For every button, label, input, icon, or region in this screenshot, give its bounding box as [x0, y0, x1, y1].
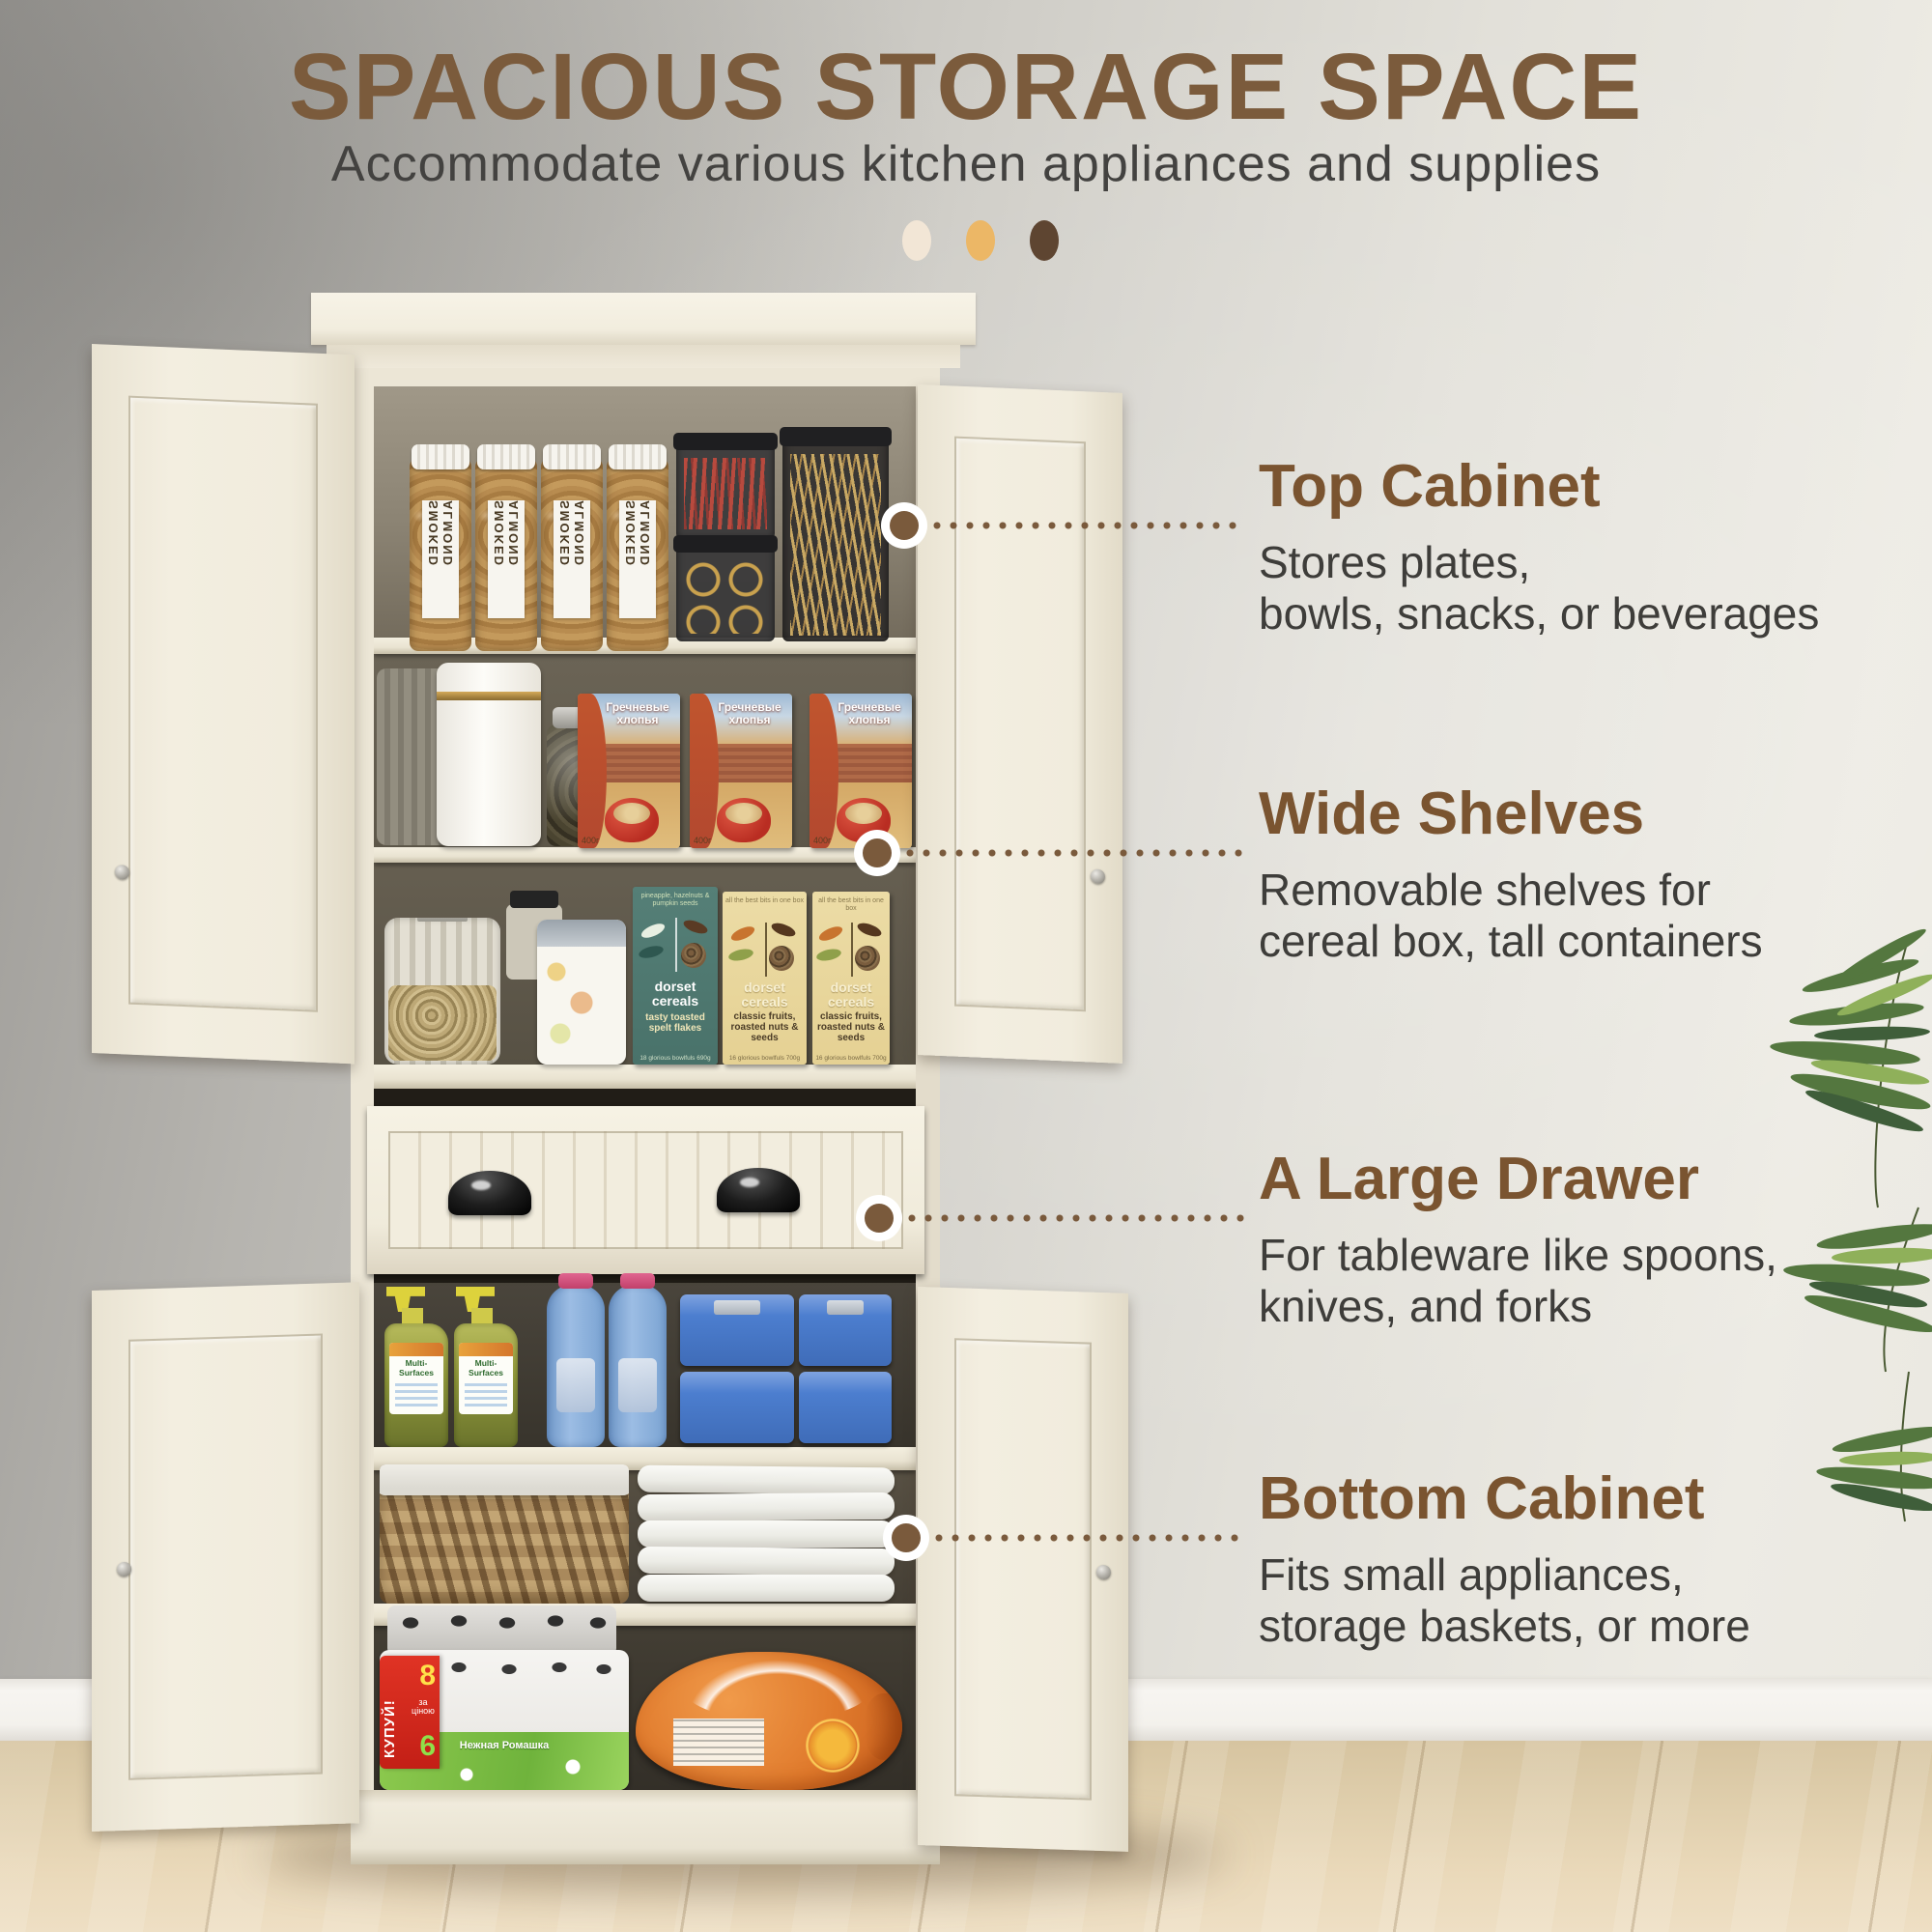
decor-dot-brown: [1030, 220, 1059, 261]
shelf-board: [374, 847, 916, 863]
connector-dot-wide-shelves: [863, 838, 892, 867]
plant-image: [1764, 918, 1932, 1526]
towel: [638, 1492, 895, 1521]
spray-bottle: Multi-Surfaces: [454, 1287, 518, 1447]
callout-title-large-drawer: A Large Drawer: [1259, 1145, 1699, 1213]
gold-band: [437, 692, 541, 700]
leaf-stem-art: [765, 923, 767, 977]
spray-label: Multi-Surfaces: [389, 1343, 443, 1414]
box-latch: [714, 1300, 759, 1315]
storage-box: [680, 1294, 794, 1366]
red-cup-art: [717, 798, 771, 842]
buckwheat-cereal-box: Гречневые хлопья 400г: [810, 694, 912, 848]
connector-line-bottom-cabinet: [935, 1534, 1244, 1542]
leaf-art: [817, 923, 844, 944]
dorset-flavor: classic fruits, roasted nuts & seeds: [724, 1011, 805, 1043]
cereal-box-title: Гречневые хлопья: [599, 701, 676, 726]
callout-body-top-cabinet: Stores plates, bowls, snacks, or beverag…: [1259, 537, 1819, 639]
jar-label: SMOKED ALMOND: [619, 500, 656, 618]
promo-number-6: 6: [419, 1730, 436, 1763]
pasta-container-red: [676, 440, 775, 539]
grain-fill: [388, 985, 497, 1061]
connector-line-drawer: [908, 1214, 1244, 1222]
spray-label: Multi-Surfaces: [459, 1343, 513, 1414]
basket-liner: [380, 1464, 629, 1495]
spaghetti-container: [782, 435, 889, 641]
dorset-flavor: classic fruits, roasted nuts & seeds: [814, 1011, 888, 1043]
leaf-art: [727, 947, 754, 962]
connector-dot-drawer: [865, 1204, 894, 1233]
leaf-art: [856, 921, 883, 939]
dorset-brand: dorset cereals: [633, 980, 718, 1009]
connector-dot-bottom-cabinet: [892, 1523, 921, 1552]
callout-title-top-cabinet: Top Cabinet: [1259, 452, 1601, 521]
container-lid: [673, 535, 778, 553]
cabinet-crown-molding: [311, 293, 976, 345]
dorset-flavor: tasty toasted spelt flakes: [635, 1012, 716, 1034]
callout-body-wide-shelves: Removable shelves for cereal box, tall c…: [1259, 865, 1763, 967]
bag-label-patch: [668, 1713, 770, 1772]
bottom-left-door: [92, 1282, 359, 1832]
towel: [638, 1547, 895, 1576]
almond-jar: SMOKED ALMOND: [475, 458, 537, 651]
box-top-text: all the best bits in one box: [723, 897, 807, 905]
fruit-print-canister: [537, 920, 626, 1065]
decor-dot-tan: [966, 220, 995, 261]
promo-word: КУПУЙ!: [382, 1662, 398, 1758]
callout-body-bottom-cabinet: Fits small appliances, storage baskets, …: [1259, 1549, 1750, 1652]
red-cup-art: [605, 798, 659, 842]
cereal-weight: 400г: [582, 836, 599, 845]
cereal-box-title: Гречневые хлопья: [831, 701, 908, 726]
bag-crinkle: [865, 1693, 902, 1760]
almond-jar: SMOKED ALMOND: [541, 458, 603, 651]
red-spaghetti: [684, 458, 767, 529]
pasta-container-rings: [676, 543, 775, 641]
storage-box: [680, 1372, 794, 1443]
box-bottom-text: 16 glorious bowlfuls 700g: [723, 1055, 807, 1062]
cabinet-base: [351, 1790, 940, 1864]
fruit-print: [543, 958, 620, 1059]
cereal-weight: 400г: [813, 836, 831, 845]
leaf-art: [638, 944, 665, 960]
dorset-brand: dorset cereals: [723, 980, 807, 1009]
promo-number-8: 8: [419, 1660, 436, 1692]
leaf-art: [770, 921, 797, 939]
container-lid: [673, 433, 778, 450]
bottle-cap: [558, 1273, 593, 1289]
buckwheat-cereal-box: Гречневые хлопья 400г: [690, 694, 792, 848]
bottle-label: [556, 1358, 595, 1412]
black-cap: [510, 891, 558, 908]
paper-roll-tops: [387, 1605, 616, 1656]
spray-bottle: Multi-Surfaces: [384, 1287, 448, 1447]
towel: [638, 1465, 895, 1495]
bag-swirl-art: [684, 1658, 870, 1721]
detergent-bottle: [609, 1285, 667, 1447]
detergent-bottle: [547, 1285, 605, 1447]
decor-dot-cream: [902, 220, 931, 261]
jar-lid: [412, 444, 469, 469]
orange-bag: [636, 1652, 902, 1790]
wicker-basket: [380, 1464, 629, 1604]
fruit-photo-art: [855, 946, 880, 971]
leaf-art: [729, 923, 756, 944]
box-latch: [827, 1300, 864, 1315]
cabinet-crown-step: [327, 345, 960, 368]
door-panel: [128, 396, 318, 1012]
container-lid: [780, 427, 892, 446]
bag-sun-art: [806, 1719, 860, 1773]
page-subtitle: Accommodate various kitchen appliances a…: [0, 135, 1932, 193]
bottle-label: [618, 1358, 657, 1412]
jar-label: SMOKED ALMOND: [422, 500, 459, 618]
leaf-stem-art: [675, 918, 677, 972]
storage-box: [799, 1372, 892, 1443]
dorset-cereals-box-cream: all the best bits in one box dorset cere…: [812, 892, 890, 1065]
top-left-door: [92, 344, 355, 1064]
ribbed-glass-jar: [384, 918, 500, 1065]
buckwheat-cereal-box: Гречневые хлопья 400г: [578, 694, 680, 848]
promo-badge: КУПУЙ! 8 за ціною 6: [380, 1656, 440, 1769]
jar-lid: [543, 444, 601, 469]
leaf-stem-art: [851, 923, 853, 977]
folded-towels: [638, 1466, 895, 1604]
jar-lid: [609, 444, 667, 469]
cereal-box-title: Гречневые хлопья: [711, 701, 788, 726]
bottle-cap: [620, 1273, 655, 1289]
fruit-photo-art: [681, 943, 706, 968]
box-top-text: pineapple, hazelnuts & pumpkin seeds: [633, 893, 718, 908]
marketing-infographic: SPACIOUS STORAGE SPACE Accommodate vario…: [0, 0, 1932, 1932]
jar-label: SMOKED ALMOND: [554, 500, 590, 618]
bottom-right-door: [918, 1287, 1128, 1852]
box-bottom-text: 18 glorious bowlfuls 690g: [633, 1055, 718, 1062]
spaghetti-sticks: [790, 454, 881, 636]
door-knob: [115, 865, 129, 880]
dorset-brand: dorset cereals: [812, 980, 890, 1009]
connector-dot-top-cabinet: [890, 511, 919, 540]
white-canister: [437, 663, 541, 846]
page-title: SPACIOUS STORAGE SPACE: [0, 33, 1932, 141]
toilet-paper-pack: Нежная Ромашка КУПУЙ! 8 за ціною 6: [380, 1629, 629, 1790]
drawer-gap-top: [374, 1089, 916, 1108]
blue-storage-boxes: [680, 1294, 794, 1447]
towel: [638, 1575, 895, 1602]
leaf-art: [639, 921, 667, 941]
callout-title-bottom-cabinet: Bottom Cabinet: [1259, 1464, 1705, 1533]
almond-jar: SMOKED ALMOND: [607, 458, 668, 651]
jar-lid: [477, 444, 535, 469]
pasta-rings: [682, 558, 769, 634]
door-knob: [1091, 869, 1105, 885]
storage-box: [799, 1294, 892, 1366]
leaf-art: [682, 918, 709, 936]
shelf-board: [374, 1065, 916, 1089]
jar-label: SMOKED ALMOND: [488, 500, 525, 618]
door-panel: [128, 1333, 323, 1779]
almond-jar: SMOKED ALMOND: [410, 458, 471, 651]
promo-mid-text: за ціною: [409, 1698, 438, 1716]
connector-line-wide-shelves: [906, 849, 1244, 857]
connector-line-top-cabinet: [933, 522, 1244, 529]
door-panel: [954, 1338, 1092, 1800]
box-top-text: all the best bits in one box: [812, 897, 890, 913]
dorset-cereals-box-teal: pineapple, hazelnuts & pumpkin seeds dor…: [633, 887, 718, 1065]
box-bottom-text: 16 glorious bowlfuls 700g: [812, 1055, 890, 1062]
door-knob: [1096, 1565, 1111, 1579]
canister-lid: [537, 920, 626, 947]
cereal-weight: 400г: [694, 836, 711, 845]
callout-body-large-drawer: For tableware like spoons, knives, and f…: [1259, 1230, 1777, 1332]
top-right-door: [918, 384, 1122, 1064]
silver-lid: [417, 918, 468, 922]
red-cup-art: [837, 798, 891, 842]
blue-storage-boxes: [799, 1294, 892, 1447]
callout-title-wide-shelves: Wide Shelves: [1259, 780, 1644, 848]
leaf-art: [815, 947, 842, 962]
fruit-photo-art: [769, 946, 794, 971]
towel: [638, 1520, 895, 1548]
dorset-cereals-box-cream: all the best bits in one box dorset cere…: [723, 892, 807, 1065]
